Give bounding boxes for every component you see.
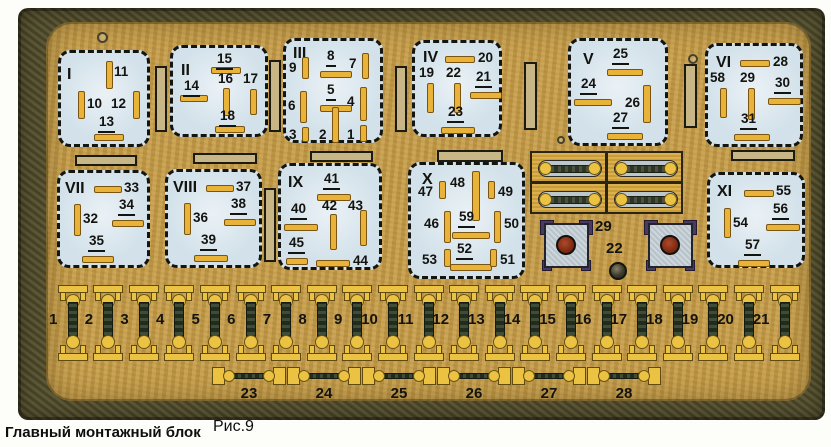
pin-number: 33 <box>124 181 139 195</box>
fuse-clip <box>58 353 88 361</box>
pin-number: 46 <box>424 217 439 231</box>
relay-IV: IV2019222123 <box>412 40 502 137</box>
relay-VI: VI2858293031 <box>705 43 803 147</box>
pin-number: 35 <box>88 234 105 252</box>
main-fuse-element <box>622 196 670 204</box>
fuse-clip <box>665 292 671 301</box>
pin-number: 19 <box>419 66 434 80</box>
relay-pin <box>112 220 144 227</box>
fuse-terminal <box>208 335 222 349</box>
fuse-clip <box>736 292 742 301</box>
horizontal-slot <box>310 151 373 162</box>
horizontal-slot <box>193 153 257 164</box>
pin-number: 6 <box>288 99 296 113</box>
fuse-number: 14 <box>502 312 520 327</box>
pin-number: 38 <box>230 197 247 215</box>
relay-pin <box>452 232 490 239</box>
fuse-clip <box>756 292 762 301</box>
link-number: 26 <box>460 386 488 401</box>
fuse-terminal <box>172 335 186 349</box>
relay-pin <box>206 185 234 192</box>
pin-number: 48 <box>450 176 465 190</box>
fuse-clip <box>542 292 548 301</box>
fuse-terminal <box>386 335 400 349</box>
link-terminal <box>448 370 460 382</box>
pin-number: 41 <box>323 172 340 190</box>
pin-number: 8 <box>326 49 336 67</box>
pin-number: 23 <box>447 105 464 123</box>
fusible-link-24 <box>287 367 361 385</box>
relay-II: II1514161718 <box>170 45 268 137</box>
screw-hole <box>557 136 565 144</box>
pin-number: 2 <box>319 128 327 142</box>
fuse-clip <box>80 292 86 301</box>
main-fuse-holder <box>530 182 607 214</box>
pin-number: 9 <box>289 61 297 75</box>
fuse-clip <box>772 292 778 301</box>
vertical-slot <box>684 64 697 128</box>
relay-VII: VII33323435 <box>57 170 150 268</box>
vertical-slot <box>264 188 276 262</box>
relay-pin <box>362 53 369 79</box>
fuse-clip <box>449 353 479 361</box>
fuse-terminal <box>671 335 685 349</box>
fuse-21 <box>770 285 800 363</box>
fuse-clip <box>202 292 208 301</box>
pin-number: 13 <box>98 115 115 133</box>
figure-number: Рис.9 <box>213 418 254 436</box>
relay-X: X474849465950535251 <box>408 162 525 279</box>
fuse-number: 4 <box>146 312 164 327</box>
pin-number: 39 <box>200 233 217 251</box>
fuse-clip <box>556 353 586 361</box>
relay-pin <box>450 264 492 271</box>
fuse-terminal <box>615 193 628 206</box>
fuse-terminal <box>66 335 80 349</box>
fuse-clip <box>380 292 386 301</box>
fuse-number: 19 <box>680 312 698 327</box>
fuse-number: 13 <box>467 312 485 327</box>
pin-number: 17 <box>243 72 258 86</box>
main-fuse-holder <box>530 151 607 183</box>
relay-pin <box>488 181 495 199</box>
relay-pin <box>490 249 497 267</box>
pin-number: 57 <box>744 238 761 256</box>
relay-IX: IX414042434544 <box>278 163 382 270</box>
main-fuse-holder <box>606 182 683 214</box>
vertical-slot <box>155 66 167 132</box>
link-terminal <box>298 370 310 382</box>
fuse-terminal <box>742 335 756 349</box>
horizontal-slot <box>437 150 503 162</box>
pin-number: 34 <box>118 198 135 216</box>
pin-number: 16 <box>218 72 233 86</box>
pin-number: 21 <box>475 70 492 88</box>
fuse-number: 3 <box>111 312 129 327</box>
fuse-terminal <box>528 335 542 349</box>
pin-number: 42 <box>322 199 337 213</box>
connector-terminal <box>660 235 680 255</box>
relay-I: I11101213 <box>58 50 150 147</box>
fuse-clip <box>485 353 515 361</box>
relay-pin <box>574 99 612 106</box>
relay-pin <box>744 190 774 197</box>
fuse-clip <box>129 353 159 361</box>
fuse-clip <box>507 292 513 301</box>
pin-number: 30 <box>774 76 791 94</box>
pin-number: 4 <box>347 95 355 109</box>
link-number: 24 <box>310 386 338 401</box>
fuse-terminal <box>137 335 151 349</box>
pin-number: 25 <box>612 47 629 65</box>
fuse-terminal <box>493 335 507 349</box>
relay-pin <box>300 91 307 123</box>
relay-pin <box>740 60 770 67</box>
pin-number: 12 <box>111 97 126 111</box>
horizontal-slot <box>75 155 137 166</box>
pin-number: 43 <box>348 199 363 213</box>
fuse-clip <box>734 353 764 361</box>
pin-number: 10 <box>87 97 102 111</box>
horizontal-slot <box>731 150 795 161</box>
pin-number: 44 <box>353 254 368 268</box>
round-terminal-connector <box>540 220 593 272</box>
relay-label: VIII <box>173 180 197 196</box>
relay-pin <box>286 258 308 265</box>
pin-number: 15 <box>216 52 233 70</box>
fuse-clip <box>222 292 228 301</box>
relay-pin <box>445 56 475 63</box>
link-terminal <box>263 370 275 382</box>
relay-pin <box>734 134 770 141</box>
relay-pin <box>316 260 350 267</box>
fuse-number: 9 <box>324 312 342 327</box>
fuse-clip <box>164 353 194 361</box>
fuse-clip <box>592 353 622 361</box>
pin-number: 37 <box>236 180 251 194</box>
relay-pin <box>224 219 256 226</box>
relay-pin <box>106 61 113 89</box>
fuse-clip <box>271 353 301 361</box>
relay-pin <box>194 255 228 262</box>
fuse-clip <box>578 292 584 301</box>
relay-VIII: VIII37363839 <box>165 169 262 268</box>
pin-number: 58 <box>710 71 725 85</box>
pin-number: 40 <box>290 202 307 220</box>
fuse-clip <box>594 292 600 301</box>
main-fuse-holder <box>606 151 683 183</box>
fuse-number: 15 <box>538 312 556 327</box>
fuse-number: 10 <box>360 312 378 327</box>
relay-pin <box>74 204 81 236</box>
relay-pin <box>607 133 643 140</box>
fusible-link-27 <box>512 367 586 385</box>
link-terminal <box>223 370 235 382</box>
fuse-clip <box>558 292 564 301</box>
fuse-clip <box>792 292 798 301</box>
fuse-clip <box>115 292 121 301</box>
fuse-clip <box>93 353 123 361</box>
pin-number: 55 <box>776 184 791 198</box>
fuse-number: 5 <box>182 312 200 327</box>
pin-number: 5 <box>326 83 336 101</box>
fuse-terminal <box>588 193 601 206</box>
fuse-clip <box>649 292 655 301</box>
fuse-clip <box>378 353 408 361</box>
fuse-terminal <box>588 162 601 175</box>
fuse-clip <box>151 292 157 301</box>
pin-number: 1 <box>347 128 355 142</box>
fuse-clip <box>414 353 444 361</box>
relay-label: VI <box>716 55 731 71</box>
link-terminal <box>338 370 350 382</box>
relay-pin <box>607 69 643 76</box>
fuse-clip <box>698 353 728 361</box>
relay-pin <box>441 127 475 134</box>
fuse-clip <box>614 292 620 301</box>
relay-III: III987654321 <box>283 38 383 143</box>
fuse-clip <box>60 292 66 301</box>
link-terminal <box>373 370 385 382</box>
pin-number: 47 <box>418 185 433 199</box>
connector-terminal <box>556 235 576 255</box>
fusible-link-28 <box>587 367 661 385</box>
relay-pin <box>724 208 731 238</box>
relay-pin <box>766 224 800 231</box>
fuse-clip <box>258 292 264 301</box>
pin-number: 20 <box>478 51 493 65</box>
caption-title: Главный монтажный блок <box>5 424 201 441</box>
pin-number: 11 <box>114 65 128 79</box>
fuse-clip <box>236 353 266 361</box>
relay-label: IX <box>288 175 303 191</box>
fuse-clip <box>329 292 335 301</box>
fuse-number: 1 <box>40 312 58 327</box>
fuse-terminal <box>539 193 552 206</box>
relay-pin <box>427 83 434 113</box>
pin-number: 32 <box>83 212 98 226</box>
pin-number: 50 <box>504 217 519 231</box>
fuse-number: 11 <box>396 312 414 327</box>
relay-pin <box>332 107 339 143</box>
fuse-number: 17 <box>609 312 627 327</box>
pin-number: 18 <box>219 109 236 127</box>
fuse-clip <box>627 353 657 361</box>
fuse-number: 7 <box>253 312 271 327</box>
screw-hole <box>688 54 698 64</box>
relay-pin <box>470 92 502 99</box>
round-terminal-connector <box>644 220 697 272</box>
connector-number: 22 <box>606 241 623 256</box>
fuse-clip <box>238 292 244 301</box>
fuse-terminal <box>664 162 677 175</box>
relay-pin <box>215 126 245 133</box>
relay-pin <box>133 91 140 119</box>
relay-pin <box>444 211 451 243</box>
pin-number: 59 <box>458 210 475 228</box>
fuse-clip <box>364 292 370 301</box>
pin-number: 3 <box>289 128 297 142</box>
pin-number: 54 <box>733 216 748 230</box>
relay-label: I <box>67 67 71 83</box>
relay-pin <box>360 210 367 246</box>
relay-pin <box>720 88 727 118</box>
fuse-clip <box>400 292 406 301</box>
fuse-clip <box>307 353 337 361</box>
pin-number: 7 <box>349 57 357 71</box>
pin-number: 52 <box>456 242 473 260</box>
relay-label: VII <box>65 181 85 197</box>
fuse-clip <box>186 292 192 301</box>
relay-pin <box>439 181 446 199</box>
screw-hole <box>97 32 108 43</box>
fuse-terminal <box>315 335 329 349</box>
pin-number: 26 <box>625 96 640 110</box>
fuse-clip <box>309 292 315 301</box>
fuse-clip <box>416 292 422 301</box>
fuse-terminal <box>564 335 578 349</box>
fuse-number: 21 <box>752 312 770 327</box>
fuse-number: 16 <box>574 312 592 327</box>
fuse-terminal <box>664 193 677 206</box>
fuse-box-diagram: Главный монтажный блок Рис.9 I11101213II… <box>0 0 831 447</box>
main-fuse-element <box>546 196 594 204</box>
fuse-clip <box>436 292 442 301</box>
main-fuse-element <box>622 165 670 173</box>
fusible-link-26 <box>437 367 511 385</box>
link-terminal <box>638 370 650 382</box>
link-number: 27 <box>535 386 563 401</box>
rivet <box>609 262 627 280</box>
pin-number: 31 <box>740 112 757 130</box>
fuse-clip <box>770 353 800 361</box>
pin-number: 56 <box>772 202 789 220</box>
link-number: 23 <box>235 386 263 401</box>
fuse-number: 6 <box>218 312 236 327</box>
relay-pin <box>94 134 124 141</box>
relay-pin <box>330 214 337 250</box>
relay-pin <box>494 211 501 243</box>
pin-number: 45 <box>288 236 305 254</box>
fuse-terminal <box>279 335 293 349</box>
fuse-terminal <box>778 335 792 349</box>
fuse-clip <box>520 353 550 361</box>
relay-label: XI <box>717 184 732 200</box>
link-number: 25 <box>385 386 413 401</box>
fuse-clip <box>200 353 230 361</box>
fuse-clip <box>487 292 493 301</box>
vertical-slot <box>395 66 407 132</box>
fuse-terminal <box>706 335 720 349</box>
pin-number: 29 <box>740 71 755 85</box>
connector-number: 29 <box>595 219 612 234</box>
pin-number: 27 <box>612 111 629 129</box>
fuse-terminal <box>600 335 614 349</box>
pin-number: 14 <box>183 79 200 97</box>
fuse-terminal <box>244 335 258 349</box>
pin-number: 36 <box>193 211 208 225</box>
fuse-terminal <box>539 162 552 175</box>
fuse-clip <box>131 292 137 301</box>
fuse-terminal <box>457 335 471 349</box>
fuse-clip <box>663 353 693 361</box>
relay-pin <box>284 224 318 231</box>
vertical-slot <box>269 60 281 132</box>
relay-label: IV <box>423 50 438 66</box>
relay-pin <box>302 127 309 142</box>
relay-V: V25242627 <box>568 38 668 146</box>
fuse-clip <box>342 353 372 361</box>
fuse-terminal <box>350 335 364 349</box>
relay-pin <box>360 125 367 142</box>
fuse-terminal <box>422 335 436 349</box>
fuse-number: 12 <box>431 312 449 327</box>
fuse-terminal <box>635 335 649 349</box>
link-terminal <box>488 370 500 382</box>
fuse-number: 20 <box>716 312 734 327</box>
pin-number: 28 <box>773 55 788 69</box>
fuse-number: 2 <box>75 312 93 327</box>
link-terminal <box>563 370 575 382</box>
relay-label: V <box>583 52 594 68</box>
relay-XI: XI55545657 <box>707 172 805 268</box>
pin-number: 24 <box>580 77 597 95</box>
relay-pin <box>320 71 352 78</box>
fusible-link-23 <box>212 367 286 385</box>
relay-pin <box>78 91 85 119</box>
vertical-slot <box>524 62 537 130</box>
relay-pin <box>184 203 191 235</box>
fusible-link-25 <box>362 367 436 385</box>
main-fuse-element <box>546 165 594 173</box>
pin-number: 22 <box>446 66 461 80</box>
relay-pin <box>360 87 367 121</box>
link-terminal <box>598 370 610 382</box>
fuse-number: 18 <box>645 312 663 327</box>
relay-pin <box>250 89 257 115</box>
pin-number: 49 <box>498 185 513 199</box>
relay-pin <box>302 57 309 79</box>
link-number: 28 <box>610 386 638 401</box>
fuse-clip <box>293 292 299 301</box>
fuse-clip <box>685 292 691 301</box>
link-terminal <box>413 370 425 382</box>
relay-pin <box>768 98 801 105</box>
relay-pin <box>94 186 122 193</box>
fuse-clip <box>471 292 477 301</box>
link-terminal <box>523 370 535 382</box>
fuse-number: 8 <box>289 312 307 327</box>
relay-pin <box>738 260 770 267</box>
relay-label: II <box>181 63 190 79</box>
relay-pin <box>82 256 114 263</box>
pin-number: 51 <box>500 253 515 267</box>
relay-pin <box>643 85 651 123</box>
fuse-clip <box>720 292 726 301</box>
pin-number: 53 <box>422 253 437 267</box>
fuse-terminal <box>101 335 115 349</box>
fuse-terminal <box>615 162 628 175</box>
